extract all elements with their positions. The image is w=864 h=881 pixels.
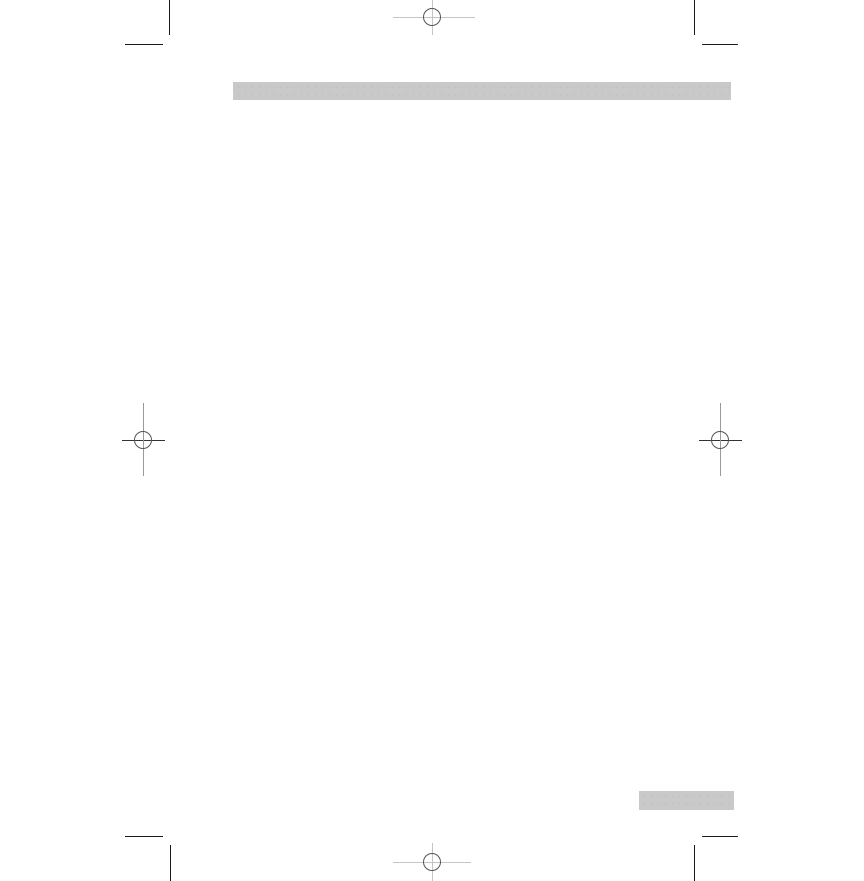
document-page (0, 0, 864, 881)
footer-page-tab (639, 791, 734, 810)
crop-mark-bottom-left-vertical-line (170, 845, 171, 881)
registration-mark-bottom-center-circle (423, 853, 441, 871)
registration-mark-left-middle-circle (134, 431, 152, 449)
registration-mark-top-center-circle (423, 8, 441, 26)
crop-mark-top-left-horizontal-line (125, 44, 163, 45)
crop-mark-top-left-vertical-line (169, 0, 170, 35)
crop-mark-top-right-vertical-line (694, 0, 695, 35)
header-bar (233, 82, 731, 100)
crop-mark-top-right-horizontal-line (702, 44, 738, 45)
crop-mark-bottom-left-horizontal-line (125, 836, 163, 837)
registration-mark-right-middle-circle (711, 431, 729, 449)
crop-mark-bottom-right-horizontal-line (702, 836, 738, 837)
crop-mark-bottom-right-vertical-line (694, 845, 695, 881)
